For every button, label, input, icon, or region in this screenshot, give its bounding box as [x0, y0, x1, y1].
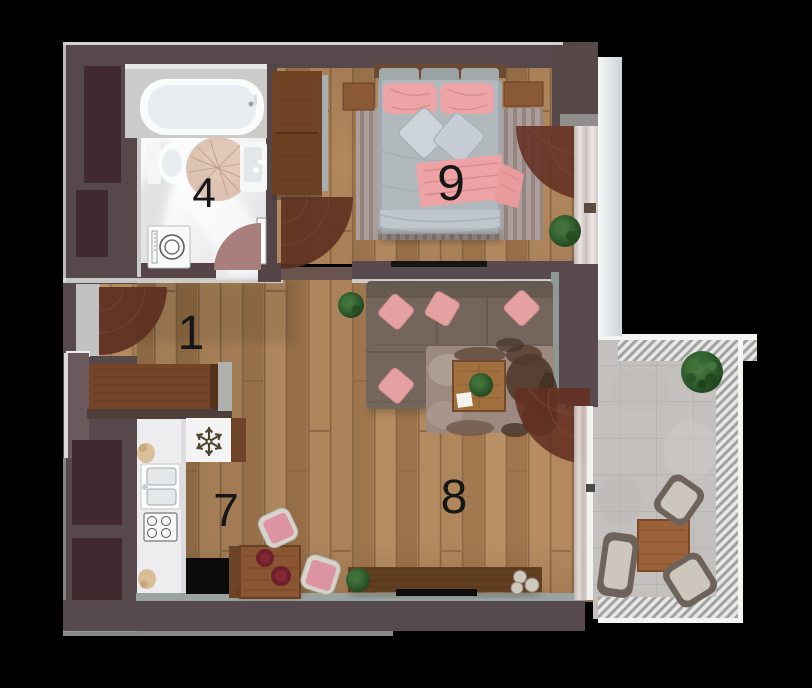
svg-text:8: 8 — [441, 471, 468, 524]
svg-text:1: 1 — [178, 307, 205, 360]
svg-text:9: 9 — [437, 155, 465, 211]
svg-text:4: 4 — [192, 169, 215, 216]
svg-text:7: 7 — [213, 484, 239, 536]
